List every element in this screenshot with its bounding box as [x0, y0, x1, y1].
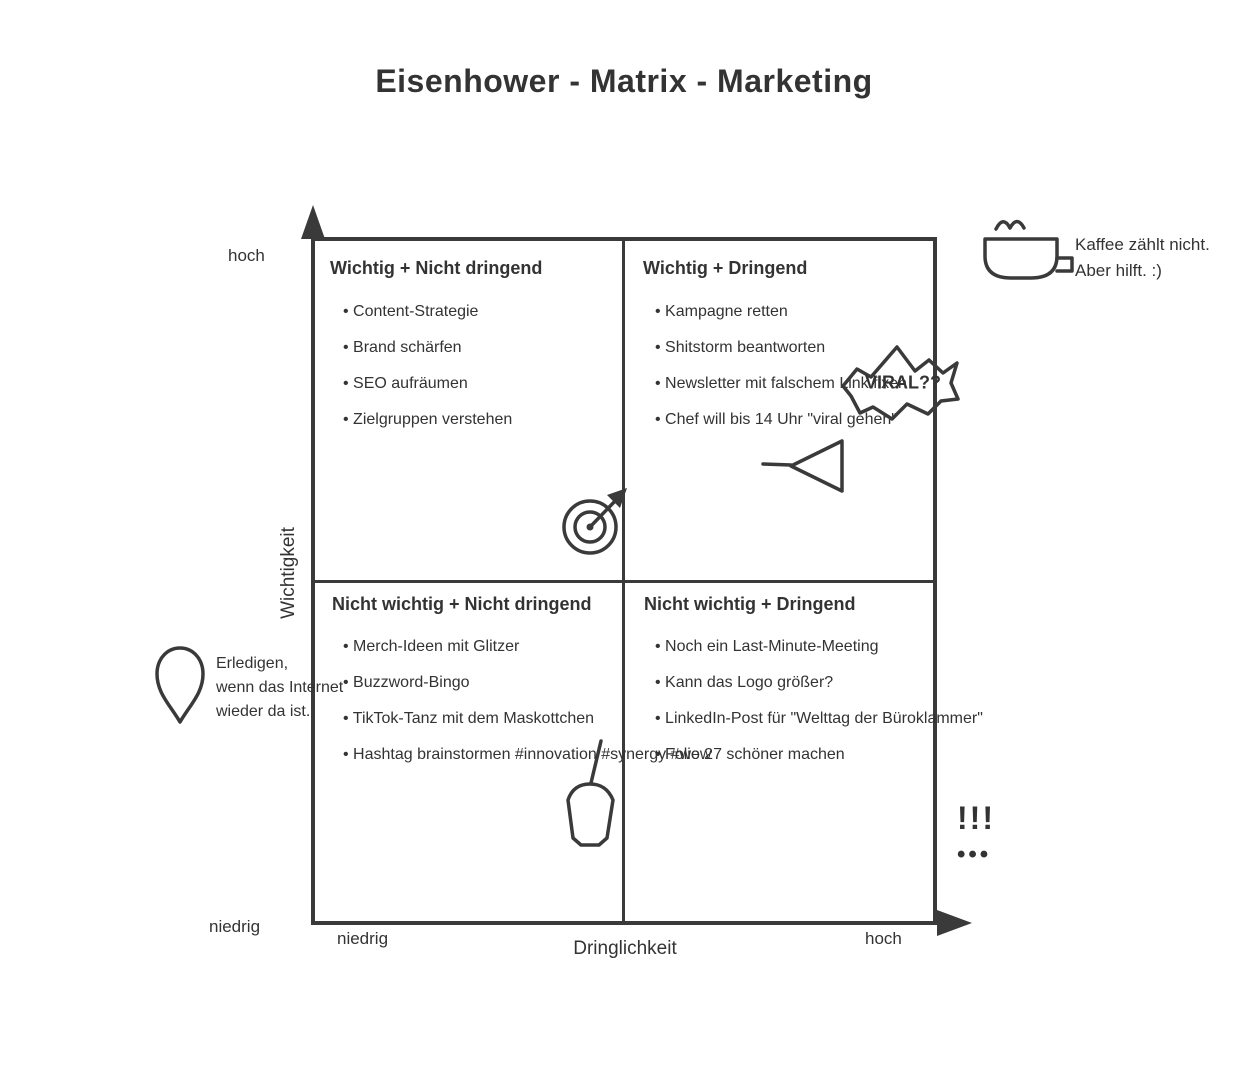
quadrant-list-wichtig-nicht-dringend: Content-Strategie Brand schärfen SEO auf…	[343, 294, 512, 438]
coffee-note-line2: Aber hilft. :)	[1075, 258, 1210, 284]
internet-note-line2: wenn das Internet	[216, 676, 343, 700]
y-axis-high-label: hoch	[228, 246, 265, 266]
internet-note-line1: Erledigen,	[216, 652, 343, 676]
x-axis-title: Dringlichkeit	[573, 938, 676, 960]
coffee-steam	[996, 222, 1024, 230]
quadrant-list-nicht-wichtig-dringend: Noch ein Last-Minute-Meeting Kann das Lo…	[655, 629, 983, 773]
quadrant-heading-nicht-wichtig-dringend: Nicht wichtig + Dringend	[644, 592, 856, 616]
teardrop-shape	[157, 648, 203, 722]
list-item: Noch ein Last-Minute-Meeting	[655, 629, 983, 665]
x-axis-arrowhead-icon	[937, 910, 972, 936]
y-axis-low-label: niedrig	[209, 917, 260, 937]
list-item: Content-Strategie	[343, 294, 512, 330]
page-title: Eisenhower - Matrix - Marketing	[0, 63, 1248, 100]
quadrant-heading-nicht-wichtig-nicht-dringend: Nicht wichtig + Nicht dringend	[332, 592, 592, 616]
list-item: Folie 27 schöner machen	[655, 737, 983, 773]
teardrop-icon	[157, 648, 203, 722]
internet-note: Erledigen, wenn das Internet wieder da i…	[216, 652, 343, 724]
x-axis-high-label: hoch	[865, 929, 902, 949]
coffee-cup-icon	[985, 222, 1072, 279]
list-item: Chef will bis 14 Uhr "viral gehen"	[655, 402, 907, 438]
list-item: Shitstorm beantworten	[655, 330, 907, 366]
viral-label: VIRAL??	[865, 373, 941, 394]
matrix-divider-horizontal	[311, 580, 937, 583]
list-item: Kann das Logo größer?	[655, 665, 983, 701]
internet-note-line3: wieder da ist.	[216, 700, 343, 724]
list-item: Kampagne retten	[655, 294, 907, 330]
x-axis-low-label: niedrig	[337, 929, 388, 949]
list-item: Brand schärfen	[343, 330, 512, 366]
eisenhower-matrix-canvas: Eisenhower - Matrix - Marketing Wichtig …	[0, 0, 1248, 1068]
coffee-note: Kaffee zählt nicht. Aber hilft. :)	[1075, 232, 1210, 284]
quadrant-heading-wichtig-dringend: Wichtig + Dringend	[643, 256, 807, 280]
y-axis-arrowhead-icon	[301, 205, 325, 239]
exclamation-marks: !!!	[957, 800, 995, 837]
quadrant-list-wichtig-dringend: Kampagne retten Shitstorm beantworten Ne…	[655, 294, 907, 438]
coffee-cup-handle	[1057, 258, 1072, 271]
ellipsis-dots: •••	[957, 841, 991, 869]
list-item: SEO aufräumen	[343, 366, 512, 402]
y-axis-title: Wichtigkeit	[278, 527, 300, 619]
list-item: LinkedIn-Post für "Welttag der Büroklamm…	[655, 701, 983, 737]
list-item: Zielgruppen verstehen	[343, 402, 512, 438]
quadrant-heading-wichtig-nicht-dringend: Wichtig + Nicht dringend	[330, 256, 542, 280]
coffee-cup-body	[985, 239, 1057, 278]
coffee-note-line1: Kaffee zählt nicht.	[1075, 232, 1210, 258]
